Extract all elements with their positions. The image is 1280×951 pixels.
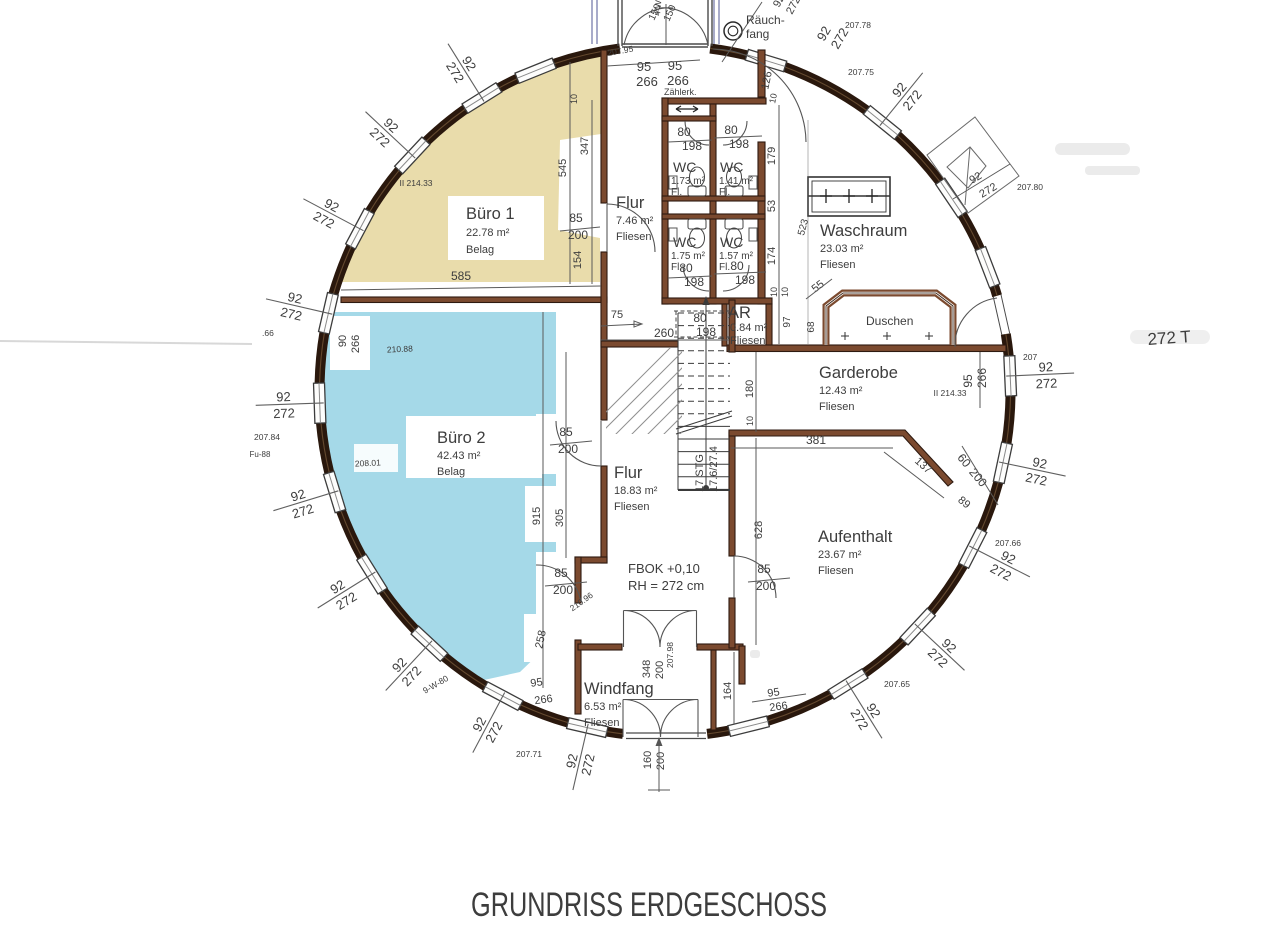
svg-text:347: 347 <box>579 137 591 155</box>
svg-text:Fliesen: Fliesen <box>819 401 854 413</box>
svg-text:915: 915 <box>531 507 543 525</box>
svg-text:Fliesen: Fliesen <box>730 335 765 347</box>
svg-text:Fliesen: Fliesen <box>820 259 855 271</box>
svg-text:198: 198 <box>729 137 749 151</box>
svg-text:207: 207 <box>1023 352 1037 362</box>
svg-text:207.98: 207.98 <box>665 642 675 668</box>
svg-text:80: 80 <box>693 311 707 325</box>
svg-text:Fliesen: Fliesen <box>614 501 649 513</box>
svg-text:85: 85 <box>559 425 573 439</box>
svg-text:0.84 m²: 0.84 m² <box>730 322 768 334</box>
svg-text:1.41 m²: 1.41 m² <box>719 176 754 187</box>
svg-text:160: 160 <box>642 751 654 769</box>
svg-text:53: 53 <box>766 200 778 212</box>
svg-text:85: 85 <box>554 566 568 580</box>
svg-text:23.67 m²: 23.67 m² <box>818 549 862 561</box>
svg-text:Büro 1: Büro 1 <box>466 205 515 223</box>
svg-text:266: 266 <box>975 368 989 388</box>
svg-text:198: 198 <box>735 273 755 287</box>
svg-text:Belag: Belag <box>437 466 465 478</box>
svg-text:90: 90 <box>337 335 349 347</box>
svg-text:80: 80 <box>730 259 744 273</box>
svg-text:AR: AR <box>728 304 751 322</box>
svg-text:92: 92 <box>1038 359 1053 375</box>
svg-text:348: 348 <box>641 660 653 678</box>
svg-text:Windfang: Windfang <box>584 680 654 698</box>
svg-text:92: 92 <box>276 389 291 404</box>
svg-text:266: 266 <box>350 335 362 353</box>
svg-text:95: 95 <box>530 676 544 690</box>
svg-text:10: 10 <box>745 416 755 426</box>
svg-text:85: 85 <box>569 211 583 225</box>
svg-text:198: 198 <box>696 325 716 339</box>
svg-text:179: 179 <box>766 147 778 165</box>
svg-text:80: 80 <box>677 125 691 139</box>
svg-text:18.83 m²: 18.83 m² <box>614 485 658 497</box>
svg-text:7.46 m²: 7.46 m² <box>616 215 654 227</box>
svg-text:95: 95 <box>961 374 975 388</box>
svg-text:207.78: 207.78 <box>845 20 871 30</box>
svg-text:Fliesen: Fliesen <box>616 231 651 243</box>
svg-text:95: 95 <box>668 58 682 73</box>
svg-text:85: 85 <box>757 562 771 576</box>
svg-text:WC: WC <box>673 159 696 175</box>
svg-text:Belag: Belag <box>466 244 494 256</box>
svg-text:GRUNDRISS ERDGESCHOSS: GRUNDRISS ERDGESCHOSS <box>471 886 827 924</box>
svg-text:164: 164 <box>722 682 734 700</box>
svg-text:266: 266 <box>769 700 789 714</box>
svg-text:180: 180 <box>744 380 756 398</box>
svg-text:17 STG: 17 STG <box>694 454 706 492</box>
svg-text:207.84: 207.84 <box>254 432 280 442</box>
svg-text:628: 628 <box>753 521 765 539</box>
svg-text:II 214.33: II 214.33 <box>933 388 966 398</box>
svg-text:260: 260 <box>654 326 674 340</box>
svg-text:208.01: 208.01 <box>355 457 382 468</box>
svg-text:272 T: 272 T <box>1147 327 1191 349</box>
svg-text:Waschraum: Waschraum <box>820 222 907 240</box>
svg-text:200: 200 <box>655 752 667 770</box>
svg-text:23.03 m²: 23.03 m² <box>820 243 864 255</box>
svg-text:fang: fang <box>746 27 769 41</box>
svg-text:272: 272 <box>273 405 295 421</box>
svg-text:10: 10 <box>780 287 790 297</box>
svg-text:154: 154 <box>572 251 584 269</box>
svg-text:17.6/27.4: 17.6/27.4 <box>708 446 720 492</box>
svg-text:545: 545 <box>557 159 569 177</box>
svg-text:174: 174 <box>766 247 778 265</box>
svg-text:207.71: 207.71 <box>516 749 542 759</box>
svg-text:266: 266 <box>636 74 658 89</box>
svg-text:266: 266 <box>667 73 689 88</box>
svg-text:Duschen: Duschen <box>866 314 913 328</box>
svg-text:97: 97 <box>782 316 793 328</box>
svg-text:12.43 m²: 12.43 m² <box>819 385 863 397</box>
svg-text:.66: .66 <box>262 328 274 338</box>
svg-text:266: 266 <box>534 693 554 707</box>
svg-text:272: 272 <box>1035 375 1057 391</box>
svg-text:210.88: 210.88 <box>387 343 414 354</box>
svg-text:22.78 m²: 22.78 m² <box>466 227 510 239</box>
svg-text:FBOK +0,10: FBOK +0,10 <box>628 561 700 576</box>
svg-text:10: 10 <box>767 92 779 104</box>
svg-text:305: 305 <box>554 509 566 527</box>
svg-text:Fl.: Fl. <box>719 262 730 273</box>
svg-text:WC: WC <box>673 234 696 250</box>
svg-text:207.66: 207.66 <box>995 538 1021 548</box>
svg-text:Zählerk.: Zählerk. <box>664 87 697 97</box>
svg-text:Räuch-: Räuch- <box>746 13 785 27</box>
svg-text:Aufenthalt: Aufenthalt <box>818 528 893 546</box>
svg-text:207.75: 207.75 <box>848 67 874 77</box>
svg-text:80: 80 <box>724 123 738 137</box>
svg-text:Flur: Flur <box>616 194 645 212</box>
svg-text:80: 80 <box>679 261 693 275</box>
svg-text:10: 10 <box>769 287 779 297</box>
svg-text:RH = 272 cm: RH = 272 cm <box>628 578 704 593</box>
svg-text:585: 585 <box>451 269 471 283</box>
svg-text:6.53 m²: 6.53 m² <box>584 701 622 713</box>
svg-text:42.43 m²: 42.43 m² <box>437 450 481 462</box>
svg-text:Garderobe: Garderobe <box>819 364 898 382</box>
svg-text:381: 381 <box>806 433 826 447</box>
svg-text:Büro 2: Büro 2 <box>437 429 486 447</box>
svg-text:Fu-88: Fu-88 <box>250 450 271 459</box>
svg-text:92: 92 <box>1031 454 1048 472</box>
svg-text:207.80: 207.80 <box>1017 182 1043 192</box>
svg-text:Fliesen: Fliesen <box>818 565 853 577</box>
svg-text:II 214.33: II 214.33 <box>399 178 432 188</box>
svg-text:Fliesen: Fliesen <box>584 717 619 729</box>
svg-text:Flur: Flur <box>614 464 643 482</box>
svg-text:207.65: 207.65 <box>884 679 910 689</box>
svg-text:95: 95 <box>637 59 651 74</box>
svg-text:75: 75 <box>611 309 623 321</box>
